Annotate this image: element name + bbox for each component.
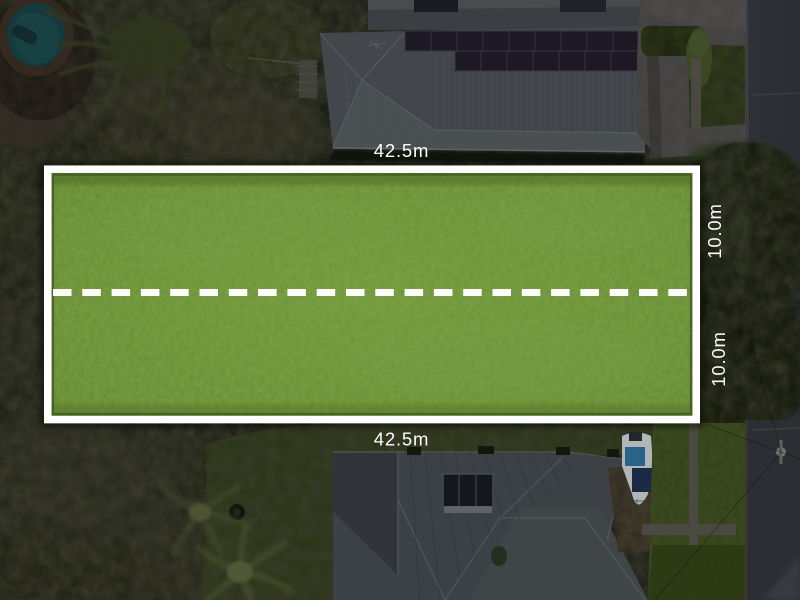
svg-text:10.0m: 10.0m [708,331,729,386]
svg-text:10.0m: 10.0m [704,203,725,258]
svg-text:42.5m: 42.5m [374,429,429,450]
svg-text:42.5m: 42.5m [374,140,429,161]
